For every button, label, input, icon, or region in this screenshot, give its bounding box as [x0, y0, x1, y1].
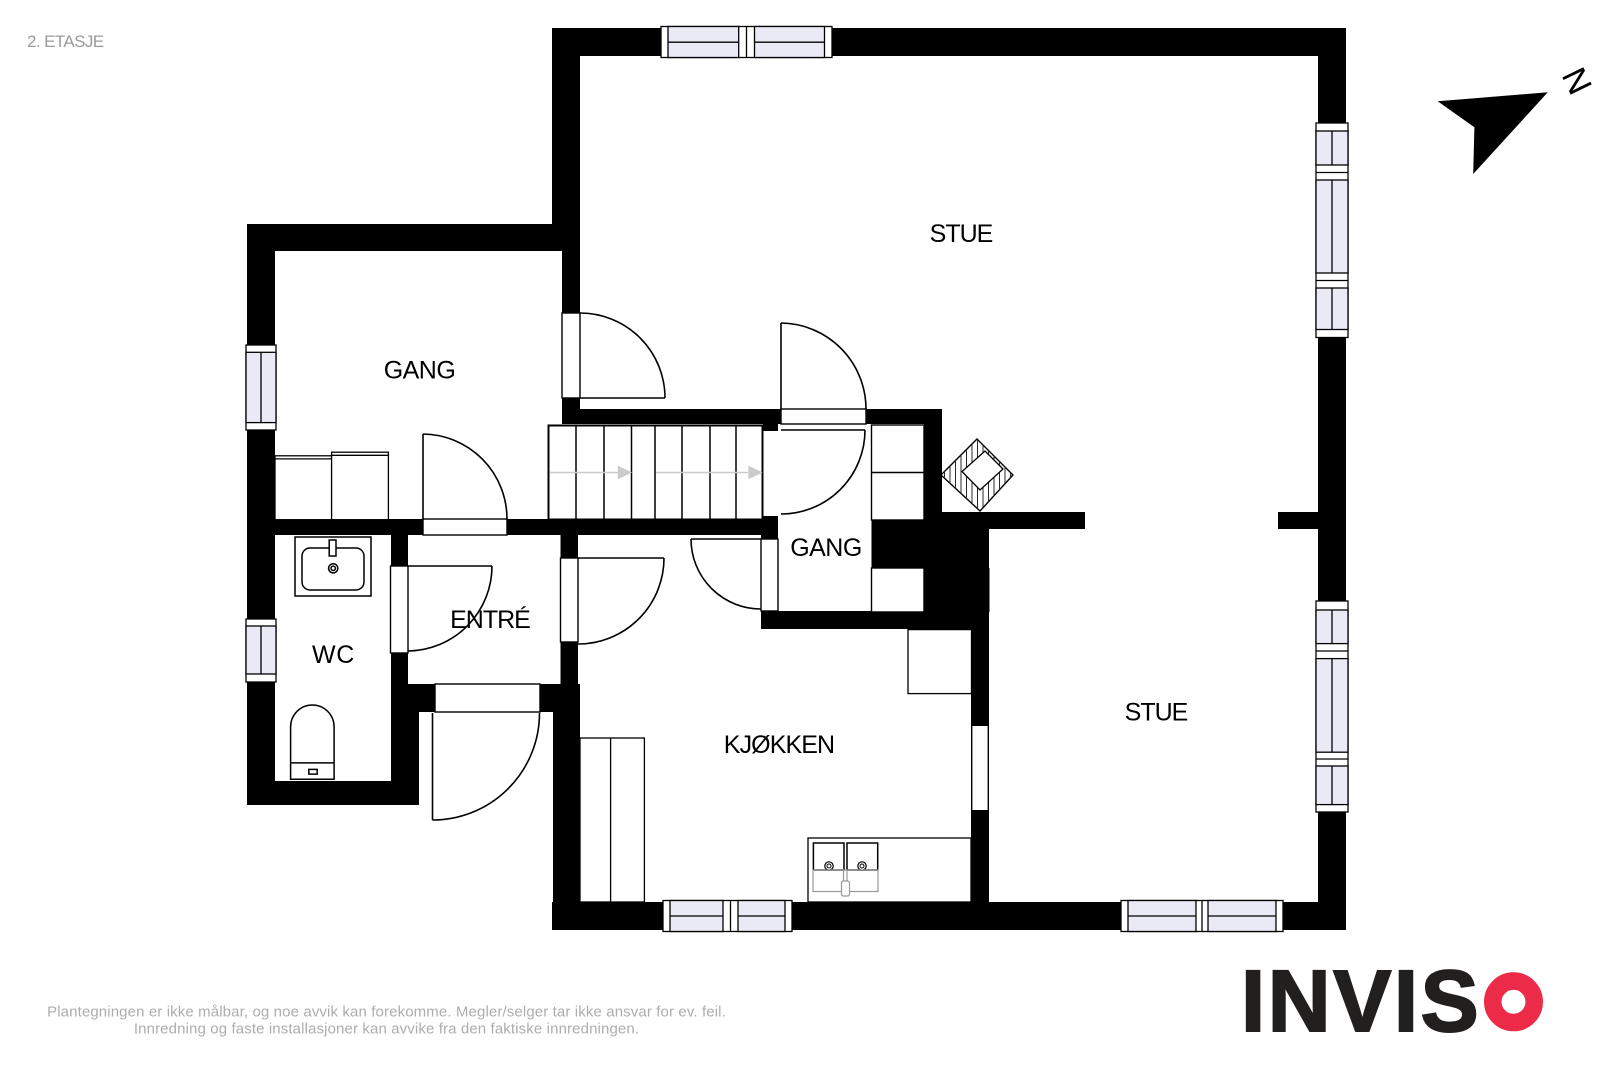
svg-text:GANG: GANG	[384, 357, 456, 385]
svg-text:GANG: GANG	[790, 534, 862, 562]
svg-text:WC: WC	[312, 641, 355, 669]
svg-text:2. ETASJE: 2. ETASJE	[27, 32, 104, 51]
svg-text:ENTRÉ: ENTRÉ	[450, 605, 530, 634]
svg-text:Plantegningen er ikke målbar,: Plantegningen er ikke målbar, og noe avv…	[47, 1004, 726, 1021]
svg-text:INVIS: INVIS	[1241, 953, 1481, 1050]
svg-text:KJØKKEN: KJØKKEN	[724, 731, 834, 759]
svg-text:STUE: STUE	[930, 220, 993, 248]
svg-text:Innredning og faste installasj: Innredning og faste installasjoner kan a…	[134, 1021, 639, 1038]
svg-text:STUE: STUE	[1125, 699, 1188, 727]
